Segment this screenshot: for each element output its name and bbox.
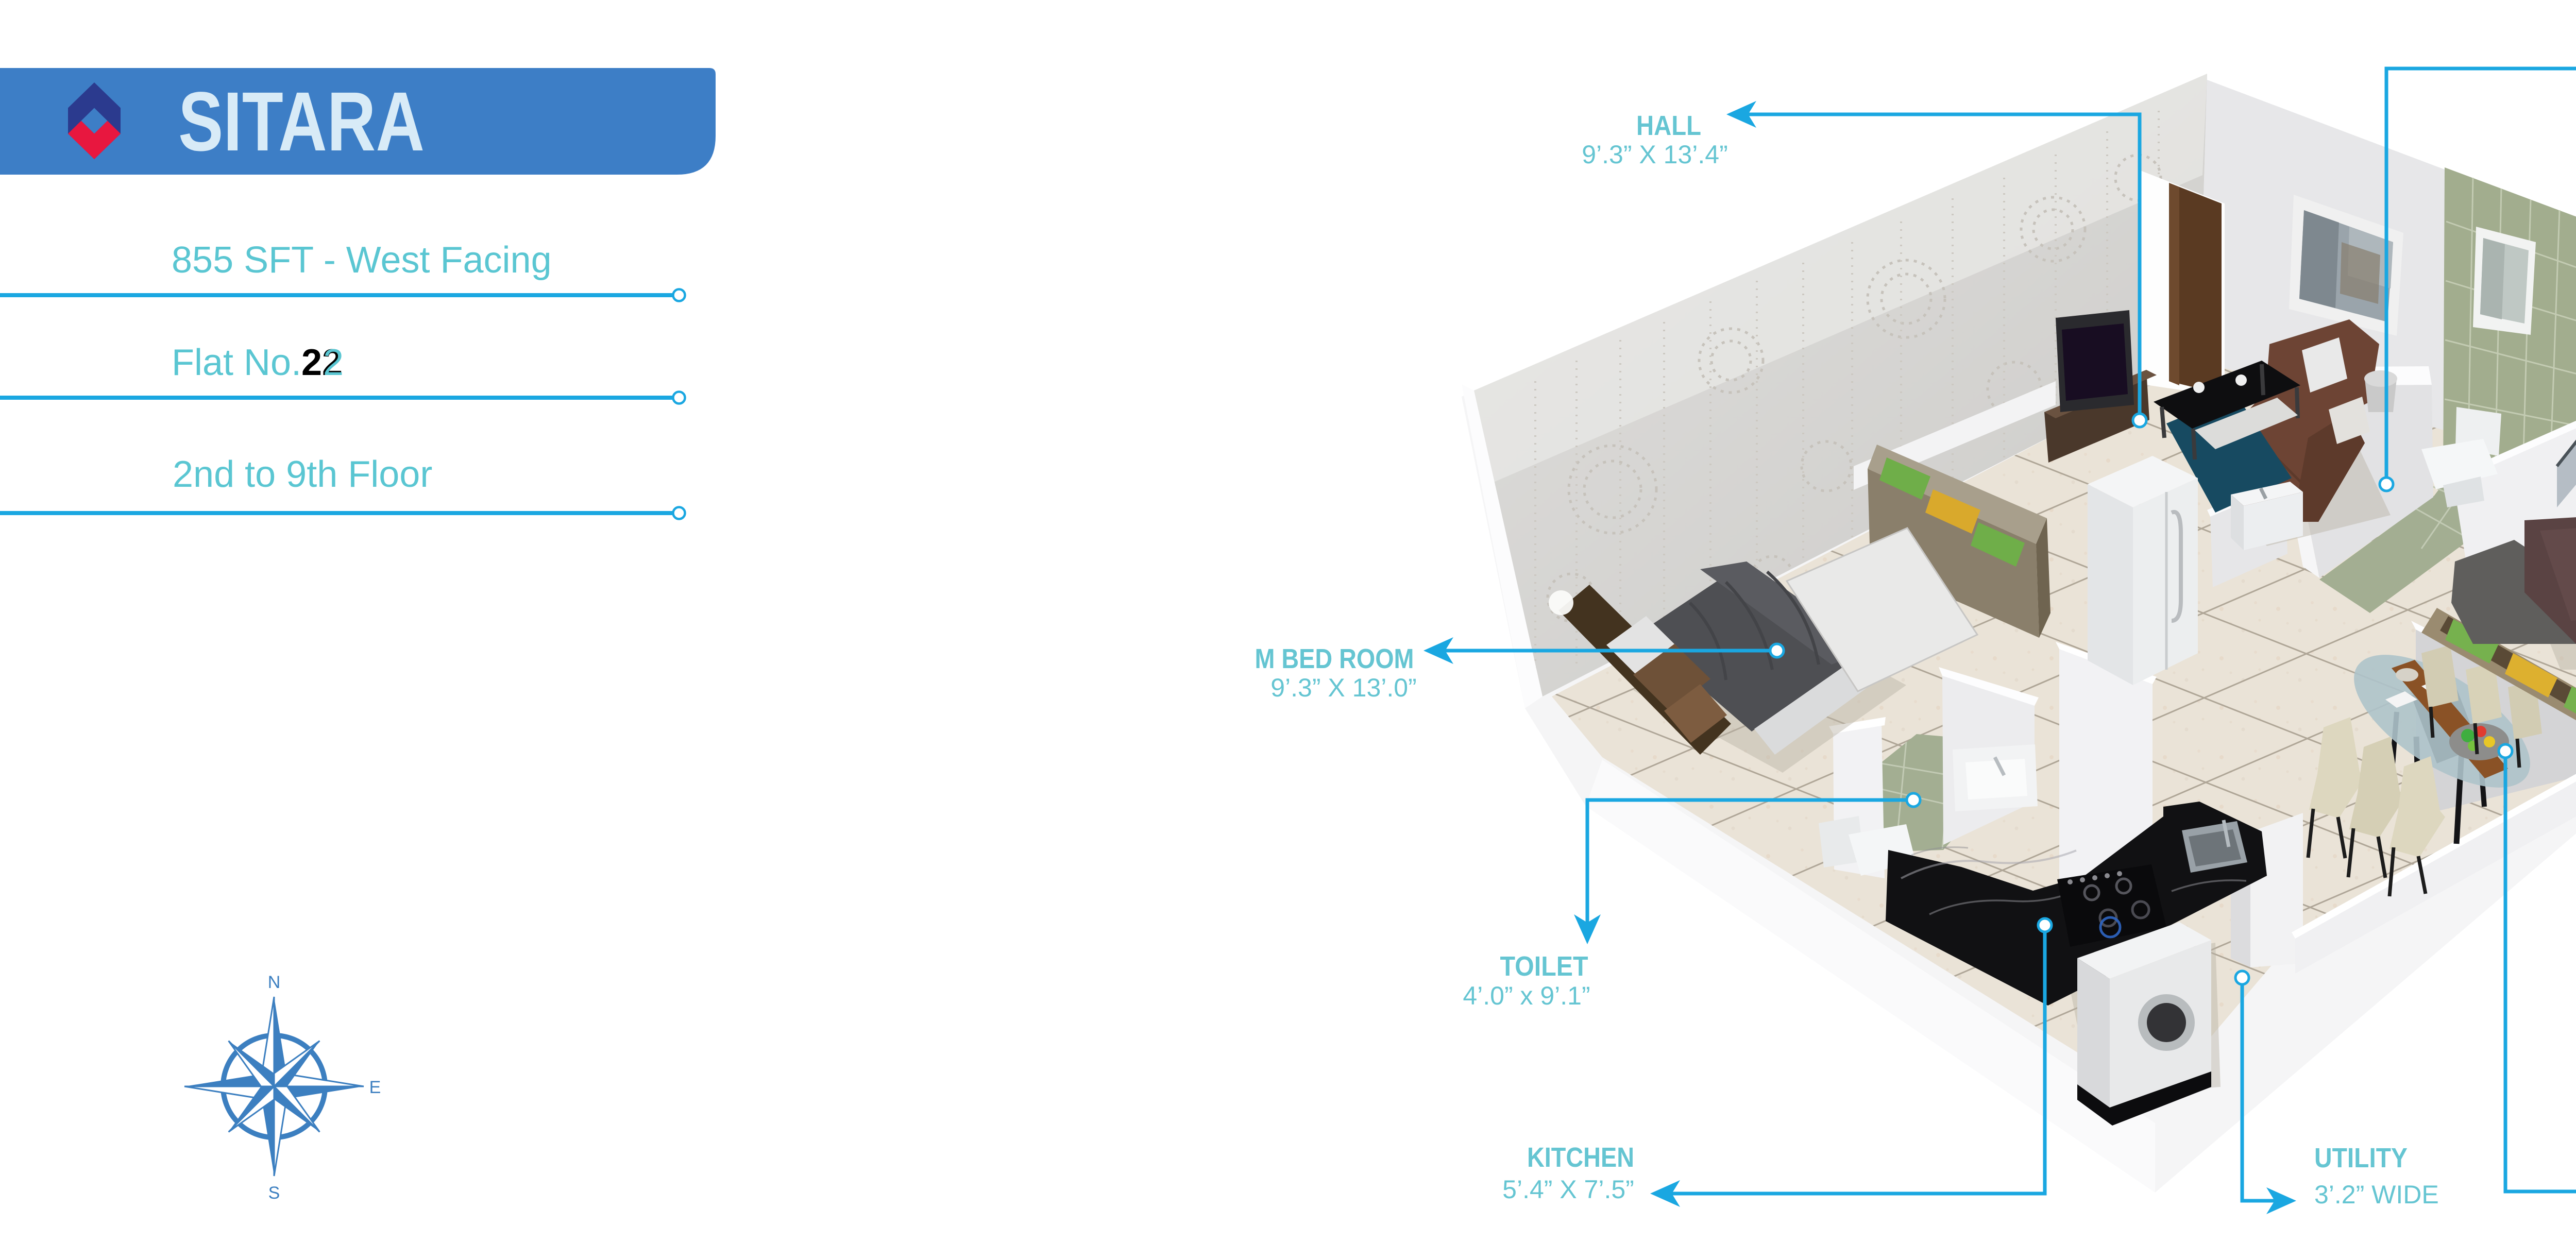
svg-text:Flat No.: Flat No.: [172, 342, 301, 383]
svg-text:4’.0” x 9’.1”: 4’.0” x 9’.1”: [1463, 981, 1590, 1010]
svg-text:2: 2: [323, 342, 344, 383]
svg-text:UTILITY: UTILITY: [2314, 1143, 2408, 1173]
svg-text:9’.3” X 13’.0”: 9’.3” X 13’.0”: [1270, 673, 1416, 702]
svg-text:2nd to 9th Floor: 2nd to 9th Floor: [173, 454, 432, 495]
svg-text:KITCHEN: KITCHEN: [1527, 1142, 1634, 1173]
svg-text:SITARA: SITARA: [178, 74, 425, 168]
svg-text:5’.4” X 7’.5”: 5’.4” X 7’.5”: [1502, 1175, 1634, 1204]
svg-text:TOILET: TOILET: [1500, 951, 1588, 982]
svg-text:HALL: HALL: [1636, 110, 1701, 141]
svg-text:9’.3” X 13’.4”: 9’.3” X 13’.4”: [1582, 140, 1727, 169]
svg-text:855 SFT - West Facing: 855 SFT - West Facing: [172, 240, 552, 281]
svg-text:M BED ROOM: M BED ROOM: [1255, 643, 1414, 674]
svg-text:3’.2” WIDE: 3’.2” WIDE: [2314, 1180, 2439, 1209]
svg-text:N: N: [268, 973, 281, 992]
svg-text:S: S: [268, 1183, 280, 1203]
svg-text:E: E: [369, 1078, 381, 1097]
